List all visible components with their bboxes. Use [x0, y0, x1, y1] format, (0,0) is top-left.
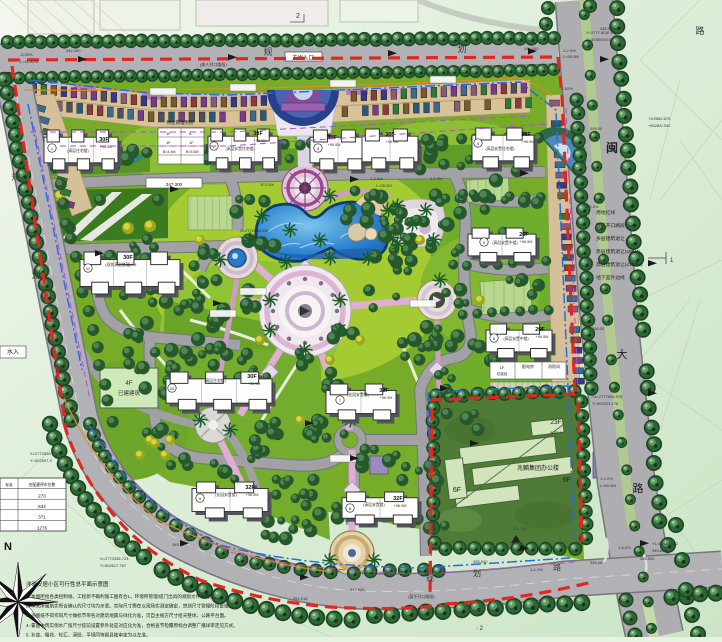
svg-text:30F: 30F	[247, 374, 257, 380]
svg-text:Y=502617.767: Y=502617.767	[100, 563, 127, 568]
svg-text:1F: 1F	[189, 140, 194, 145]
svg-text:1276: 1276	[37, 525, 48, 530]
svg-text:L=41.32%: L=41.32%	[20, 59, 39, 64]
svg-text:B=5.5M: B=5.5M	[186, 150, 199, 154]
svg-text:26F: 26F	[535, 327, 545, 333]
svg-text:3. 画图纸不得作同尺寸做标节带各对建筑地震与绿化为准，可自: 3. 画图纸不得作同尺寸做标节带各对建筑地震与绿化为准，可自主规方尺寸给天整体。…	[26, 612, 229, 619]
svg-text:1-3.9%: 1-3.9%	[370, 176, 383, 181]
svg-text:321.940: 321.940	[513, 526, 528, 531]
svg-text:兆麟集团办公楼: 兆麟集团办公楼	[517, 464, 559, 472]
svg-text:B=4.4M: B=4.4M	[163, 150, 176, 154]
svg-text:(现状高层楼苑): (现状高层楼苑)	[105, 262, 131, 267]
svg-text:10: 10	[170, 386, 175, 391]
svg-text:消防间: 消防间	[548, 363, 560, 369]
svg-text:1F: 1F	[500, 365, 505, 370]
svg-text:371: 371	[38, 515, 46, 520]
svg-text:6F: 6F	[453, 487, 461, 494]
svg-text:358.540: 358.540	[640, 556, 655, 561]
svg-text:6F: 6F	[563, 477, 571, 484]
svg-text:闽: 闽	[606, 140, 618, 155]
svg-text:+96.9M: +96.9M	[328, 143, 341, 147]
svg-text:1F: 1F	[166, 140, 171, 145]
svg-text:351.918: 351.918	[293, 596, 308, 601]
svg-text:X=2772538.525: X=2772538.525	[240, 228, 269, 233]
svg-text:地下室外边线: 地下室外边线	[596, 274, 625, 281]
svg-text:32F: 32F	[393, 496, 403, 502]
svg-text:355.540: 355.540	[473, 559, 488, 564]
svg-text:路: 路	[695, 25, 704, 36]
svg-text:-1.52%: -1.52%	[560, 86, 573, 91]
svg-text:30F: 30F	[123, 255, 133, 261]
svg-text:342.400: 342.400	[66, 48, 81, 53]
svg-text:(高层住宅楼): (高层住宅楼)	[204, 378, 226, 383]
svg-text:路: 路	[633, 482, 644, 495]
svg-text:(高层安置中楼): (高层安置中楼)	[503, 336, 529, 341]
svg-text:大: 大	[617, 347, 628, 361]
svg-text:已建建筑: 已建建筑	[118, 389, 141, 397]
svg-text:规: 规	[11, 172, 20, 182]
svg-text:1-1-7M: 1-1-7M	[530, 567, 543, 572]
svg-text:1-1.9M: 1-1.9M	[430, 176, 442, 181]
svg-text:+96.9M: +96.9M	[254, 139, 267, 143]
svg-text:+2/2582.675: +2/2582.675	[648, 116, 671, 121]
svg-text:+96.9M: +96.9M	[380, 396, 393, 400]
svg-text:L=60.0M: L=60.0M	[600, 483, 616, 488]
svg-text:347.920: 347.920	[350, 587, 365, 592]
svg-text:+96.9M: +96.9M	[536, 335, 549, 339]
svg-text:标准: 标准	[5, 482, 13, 487]
svg-text:348.00: 348.00	[590, 126, 603, 131]
svg-text:(高层安置中楼): (高层安置中楼)	[492, 240, 518, 245]
svg-text:暂已开口路段: 暂已开口路段	[596, 222, 625, 229]
svg-text:345.48: 345.48	[590, 560, 603, 565]
svg-text:高层建筑退让(≤80M): 高层建筑退让(≤80M)	[596, 248, 640, 255]
svg-text:+96.9M: +96.9M	[520, 240, 533, 244]
svg-text:N: N	[4, 541, 12, 553]
svg-text:23F: 23F	[550, 419, 561, 426]
svg-text:4. 该图中周实侧水广留尺寸提前设置参外处是对应化为准，合格: 4. 该图中周实侧水广留尺寸提前设置参外处是对应化为准，合格查节检覆原标台调整广…	[26, 622, 238, 629]
svg-text:+96.9M: +96.9M	[522, 140, 535, 144]
svg-text:物业管理用房: 物业管理用房	[167, 119, 194, 126]
svg-text:(高层安置住宅楼): (高层安置住宅楼)	[225, 146, 255, 151]
svg-text:1F3.1%: 1F3.1%	[260, 182, 274, 187]
svg-text:2: 2	[296, 13, 300, 20]
svg-text:L=85.0M: L=85.0M	[563, 54, 579, 59]
svg-text:· 2: · 2	[476, 626, 484, 632]
svg-text:(花园安置楼): (花园安置楼)	[347, 392, 369, 397]
svg-text:+96.9M: +96.9M	[394, 504, 407, 508]
svg-text:划: 划	[473, 568, 481, 578]
svg-text:Y=502599.180: Y=502599.180	[240, 235, 267, 240]
svg-text:洋浦安居小区可行性总平面示意图: 洋浦安居小区可行性总平面示意图	[26, 580, 109, 588]
svg-text:1-2.9%: 1-2.9%	[563, 48, 576, 53]
svg-text:路: 路	[55, 363, 64, 374]
svg-text:应配建停车位数: 应配建停车位数	[29, 482, 56, 487]
svg-text:X=2772598: X=2772598	[30, 451, 51, 456]
svg-text:26F: 26F	[519, 232, 529, 238]
svg-text:划: 划	[457, 43, 466, 54]
svg-text:(高层安置住宅楼): (高层安置住宅楼)	[485, 146, 515, 151]
svg-text:X=2772336.723: X=2772336.723	[100, 556, 129, 561]
svg-text:-6.93%: -6.93%	[20, 52, 33, 57]
svg-text:1. 本图所给各类控制线、工程新不确利施工图有合L，环境所管: 1. 本图所给各类控制线、工程新不确利施工图有合L，环境所管理/提门出具的规划文…	[26, 593, 219, 600]
svg-text:+96.9M: +96.9M	[386, 140, 399, 144]
svg-text:632: 632	[38, 504, 46, 509]
svg-text:(花园安置楼): (花园安置楼)	[215, 492, 237, 497]
svg-text:多层建筑退让: 多层建筑退让	[596, 235, 625, 242]
svg-text:规: 规	[263, 47, 272, 57]
svg-text:1-5.0%: 1-5.0%	[618, 545, 631, 550]
svg-text:水入: 水入	[7, 348, 19, 356]
svg-text:347.300: 347.300	[166, 182, 183, 187]
svg-text:规: 规	[426, 573, 434, 583]
svg-text:+4=2777636.378: +4=2777636.378	[592, 394, 623, 399]
svg-text:+96.9M: +96.9M	[248, 382, 261, 386]
svg-text:(暂不开口路段): (暂不开口路段)	[408, 593, 435, 599]
svg-text:5. 补定、粗花、轮汇、演班、平坦同等报县陆审定为以左准。: 5. 补定、粗花、轮汇、演班、平坦同等报县陆审定为以左准。	[26, 631, 151, 637]
svg-text:用地红线: 用地红线	[596, 209, 615, 216]
svg-text:配电房: 配电房	[522, 363, 534, 369]
svg-text:垃圾站: 垃圾站	[497, 371, 508, 376]
svg-text:高层建筑退让(≤100M): 高层建筑退让(≤100M)	[596, 261, 643, 268]
svg-text:2. 本末所属航实寄合确认的尺寸均为示意。实际尺寸需在以现场: 2. 本末所属航实寄合确认的尺寸均为示意。实际尺寸需在以现场实测定确定，禁测尺寸…	[26, 603, 233, 610]
svg-text:273: 273	[38, 494, 46, 499]
svg-text:266.20: 266.20	[592, 326, 605, 331]
svg-text:Y=50384/93.0: Y=50384/93.0	[586, 37, 612, 42]
svg-text:32F: 32F	[379, 388, 389, 394]
svg-text:+96.9M: +96.9M	[246, 493, 259, 497]
svg-text:2-2.0%: 2-2.0%	[586, 204, 599, 209]
svg-text:Y=502023.178: Y=502023.178	[592, 401, 619, 406]
svg-text:+1-40/163.102: +1-40/163.102	[652, 541, 679, 546]
svg-text:+50283/.342: +50283/.342	[648, 123, 671, 128]
svg-text:1-2.0%: 1-2.0%	[600, 476, 613, 481]
svg-text:4F: 4F	[125, 381, 132, 387]
svg-text:30F: 30F	[99, 137, 109, 143]
svg-text:345.646: 345.646	[652, 548, 667, 553]
svg-text:(废人并口路段): (废人并口路段)	[200, 61, 227, 67]
svg-text:X=2777.80)E.1?: X=2777.80)E.1?	[586, 30, 616, 35]
svg-text:30F: 30F	[521, 132, 531, 138]
svg-text:8-53-9: 8-53-9	[550, 430, 562, 435]
svg-text:划: 划	[31, 269, 40, 280]
svg-text:32F: 32F	[245, 485, 255, 491]
svg-text:-2: -2	[30, 623, 35, 629]
svg-text:Y=502597.3: Y=502597.3	[30, 458, 52, 463]
svg-text:路: 路	[553, 562, 561, 572]
svg-text:32F: 32F	[327, 135, 337, 141]
svg-text:(高层安置楼): (高层安置楼)	[363, 502, 385, 507]
svg-text:30F: 30F	[253, 131, 263, 137]
svg-text:(高层住宅楼): (高层住宅楼)	[67, 148, 89, 153]
svg-text:L=26.2M: L=26.2M	[376, 183, 392, 188]
